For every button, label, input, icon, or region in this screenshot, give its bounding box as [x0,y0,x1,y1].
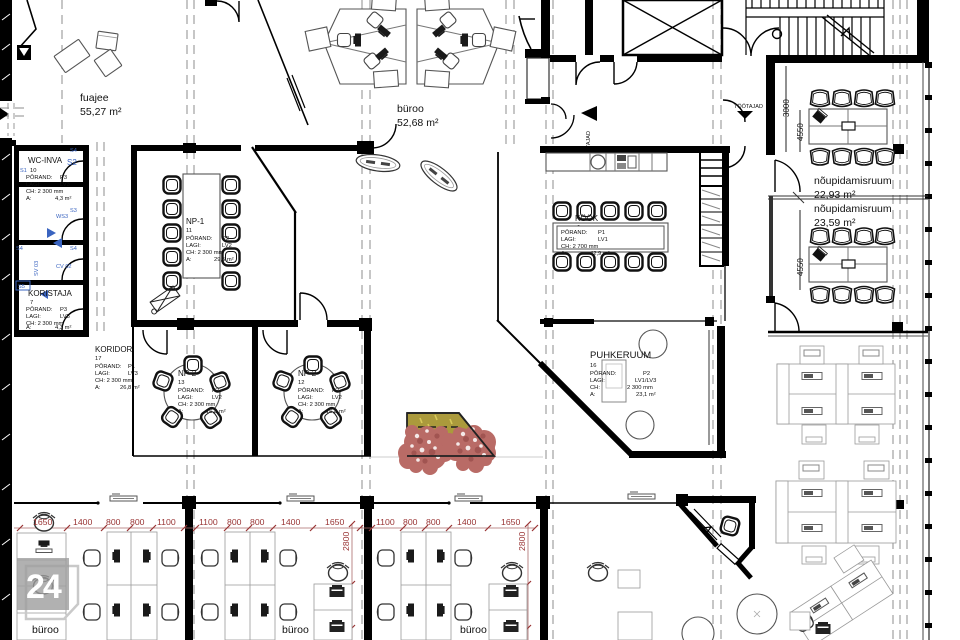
svg-text:4,3 m²: 4,3 m² [55,325,71,331]
svg-text:13: 13 [178,380,184,386]
svg-text:büroo: büroo [460,624,487,636]
svg-text:LV2: LV2 [212,395,222,401]
svg-text:P1: P1 [598,230,605,236]
svg-text:nõupidamisruum: nõupidamisruum [814,203,892,215]
svg-text:P1: P1 [128,364,135,370]
svg-text:4550: 4550 [796,258,805,276]
svg-text:PÔRAND:: PÔRAND: [186,235,213,242]
svg-text:1650: 1650 [33,517,52,527]
svg-text:1650: 1650 [325,517,344,527]
svg-text:CH: 2 300 mm: CH: 2 300 mm [186,250,224,256]
svg-text:P2: P2 [643,371,650,377]
svg-text:800: 800 [403,517,418,527]
svg-text:SV 03: SV 03 [34,261,40,276]
svg-text:LAGI:: LAGI: [298,395,313,401]
svg-text:S4: S4 [16,246,23,252]
svg-text:A:: A: [26,325,32,331]
svg-text:P3: P3 [60,175,67,181]
svg-text:PÔRAND:: PÔRAND: [26,174,53,181]
svg-text:PÔRAND:: PÔRAND: [561,229,588,236]
svg-text:A:: A: [186,257,192,263]
svg-text:CH: 2 300 mm: CH: 2 300 mm [95,378,133,384]
svg-text:S3: S3 [70,208,77,214]
svg-text:1400: 1400 [73,517,92,527]
svg-text:NP-2: NP-2 [298,369,317,378]
svg-text:52,68 m²: 52,68 m² [397,117,439,129]
svg-text:1400: 1400 [281,517,300,527]
svg-text:S1: S1 [20,168,27,174]
svg-text:LAGI:: LAGI: [26,182,41,188]
svg-text:PÔRAND:: PÔRAND: [95,363,122,370]
svg-text:23,1 m²: 23,1 m² [636,392,656,398]
svg-text:P3: P3 [60,307,67,313]
svg-text:CH: 2 300 mm: CH: 2 300 mm [298,402,336,408]
svg-text:1100: 1100 [157,517,176,527]
svg-text:NP-1: NP-1 [186,217,205,226]
svg-text:800: 800 [106,517,121,527]
svg-text:PÔRAND:: PÔRAND: [590,370,617,377]
svg-text:PÔRAND:: PÔRAND: [178,387,205,394]
svg-text:LV3: LV3 [60,314,70,320]
svg-text:WS3: WS3 [56,214,68,220]
svg-text:CH: 2 300 mm: CH: 2 300 mm [26,189,64,195]
svg-text:800: 800 [227,517,242,527]
svg-text:nõupidamisruum: nõupidamisruum [814,175,892,187]
svg-text:16,8 m²: 16,8 m² [326,409,346,415]
svg-text:CH:: CH: [590,385,600,391]
svg-text:S2: S2 [67,158,77,167]
svg-text:A:: A: [590,392,596,398]
svg-text:büroo: büroo [397,103,424,115]
svg-text:LAGI:: LAGI: [561,237,576,243]
svg-text:WC-INVA: WC-INVA [28,156,63,165]
svg-text:29,5 m²: 29,5 m² [214,257,234,263]
svg-text:LAGI:: LAGI: [95,371,110,377]
svg-text:KÖÖK: KÖÖK [575,214,599,223]
svg-text:P2: P2 [212,388,219,394]
svg-text:A:: A: [178,409,184,415]
svg-text:CH: 2 300 mm: CH: 2 300 mm [178,402,216,408]
svg-text:S4: S4 [70,148,77,154]
svg-text:P2: P2 [332,388,339,394]
svg-text:16: 16 [590,363,596,369]
svg-text:büroo: büroo [282,624,309,636]
svg-text:TÖÖTAJAD: TÖÖTAJAD [734,103,763,110]
svg-text:S5: S5 [18,284,25,290]
svg-text:10: 10 [30,168,36,174]
svg-text:4550: 4550 [796,123,805,141]
svg-text:CH: 2 700 mm: CH: 2 700 mm [561,244,599,250]
svg-text:LAGI:: LAGI: [178,395,193,401]
svg-text:3000: 3000 [782,99,791,117]
svg-text:A:: A: [26,196,32,202]
svg-text:26,8 m²: 26,8 m² [120,385,140,391]
svg-text:2800: 2800 [517,532,527,551]
svg-text:NP-2: NP-2 [178,369,197,378]
svg-text:LAGI:: LAGI: [186,243,201,249]
svg-text:P2: P2 [222,236,229,242]
svg-text:16,8 m²: 16,8 m² [206,409,226,415]
svg-text:LAGI:: LAGI: [590,378,605,384]
svg-text:LAGI:: LAGI: [26,314,41,320]
svg-text:1400: 1400 [457,517,476,527]
svg-text:800: 800 [250,517,265,527]
svg-text:22,93 m²: 22,93 m² [814,189,856,201]
svg-text:KORISTAJA: KORISTAJA [28,289,73,298]
svg-text:fuajee: fuajee [80,92,109,104]
svg-text:17: 17 [95,356,101,362]
svg-text:4,3 m²: 4,3 m² [55,196,71,202]
svg-text:PUHKERUUM: PUHKERUUM [590,350,651,361]
svg-text:LV3: LV3 [60,182,70,188]
svg-text:LV2: LV2 [332,395,342,401]
svg-text:A:: A: [298,409,304,415]
svg-text:24: 24 [26,568,62,606]
svg-text:12: 12 [298,380,304,386]
svg-text:1100: 1100 [376,517,395,527]
svg-text:7: 7 [30,300,33,306]
svg-text:PÔRAND:: PÔRAND: [298,387,325,394]
svg-text:55,27 m²: 55,27 m² [80,106,122,118]
svg-text:LV2: LV2 [222,243,232,249]
svg-text:800: 800 [426,517,441,527]
svg-text:CV 02: CV 02 [56,264,72,270]
svg-text:A:: A: [95,385,101,391]
svg-text:2800: 2800 [341,532,351,551]
svg-text:2 300 mm: 2 300 mm [627,385,653,391]
svg-text:LV1/LV3: LV1/LV3 [635,378,656,384]
svg-text:büroo: büroo [32,624,59,636]
svg-text:800: 800 [130,517,145,527]
svg-text:LV1: LV1 [598,237,608,243]
svg-text:PÔRAND:: PÔRAND: [26,306,53,313]
svg-text:S4: S4 [70,246,77,252]
svg-text:KORIDOR: KORIDOR [95,345,133,354]
svg-text:1100: 1100 [199,517,218,527]
svg-text:11: 11 [186,228,192,234]
svg-text:1650: 1650 [501,517,520,527]
